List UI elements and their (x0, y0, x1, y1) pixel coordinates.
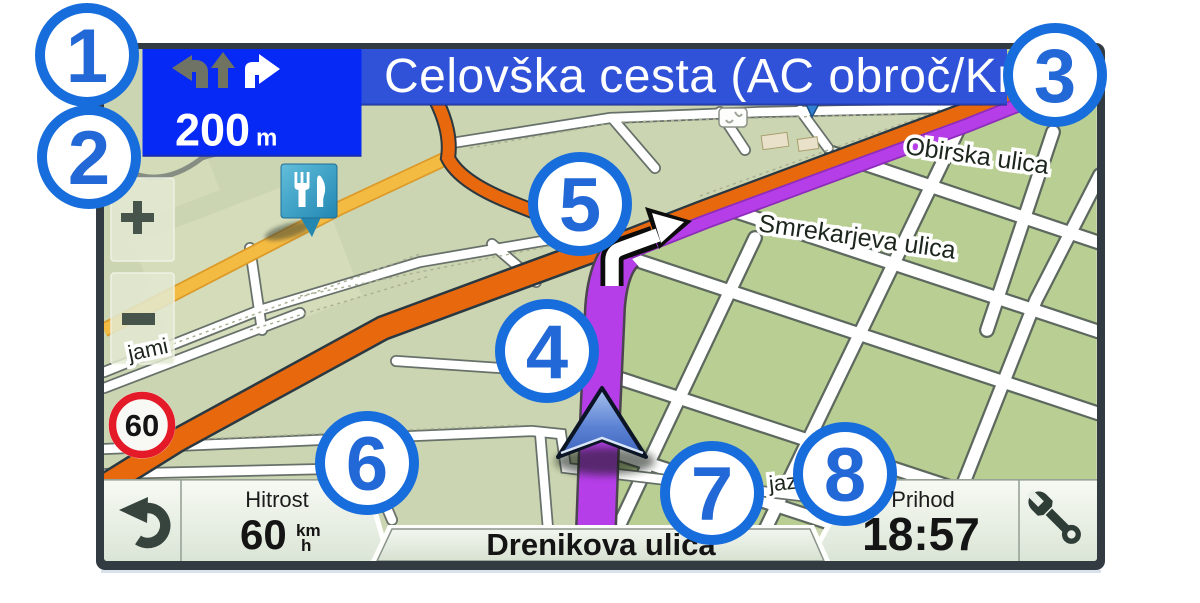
svg-text:8: 8 (824, 433, 866, 518)
svg-text:2: 2 (68, 116, 110, 201)
svg-text:60: 60 (125, 408, 159, 443)
svg-text:1: 1 (66, 14, 108, 99)
svg-text:18:57: 18:57 (862, 508, 980, 560)
svg-text:Hitrost: Hitrost (245, 487, 309, 512)
svg-text:h: h (301, 536, 311, 555)
svg-text:60: 60 (240, 511, 287, 558)
svg-text:3: 3 (1034, 34, 1076, 119)
svg-text:6: 6 (346, 422, 388, 507)
svg-text:200: 200 (175, 105, 250, 156)
svg-text:7: 7 (691, 452, 733, 537)
svg-text:m: m (256, 125, 277, 152)
svg-text:5: 5 (559, 163, 601, 248)
svg-text:4: 4 (526, 310, 568, 395)
svg-text:Celovška cesta (AC obroč/Kra: Celovška cesta (AC obroč/Kra (384, 50, 1041, 103)
